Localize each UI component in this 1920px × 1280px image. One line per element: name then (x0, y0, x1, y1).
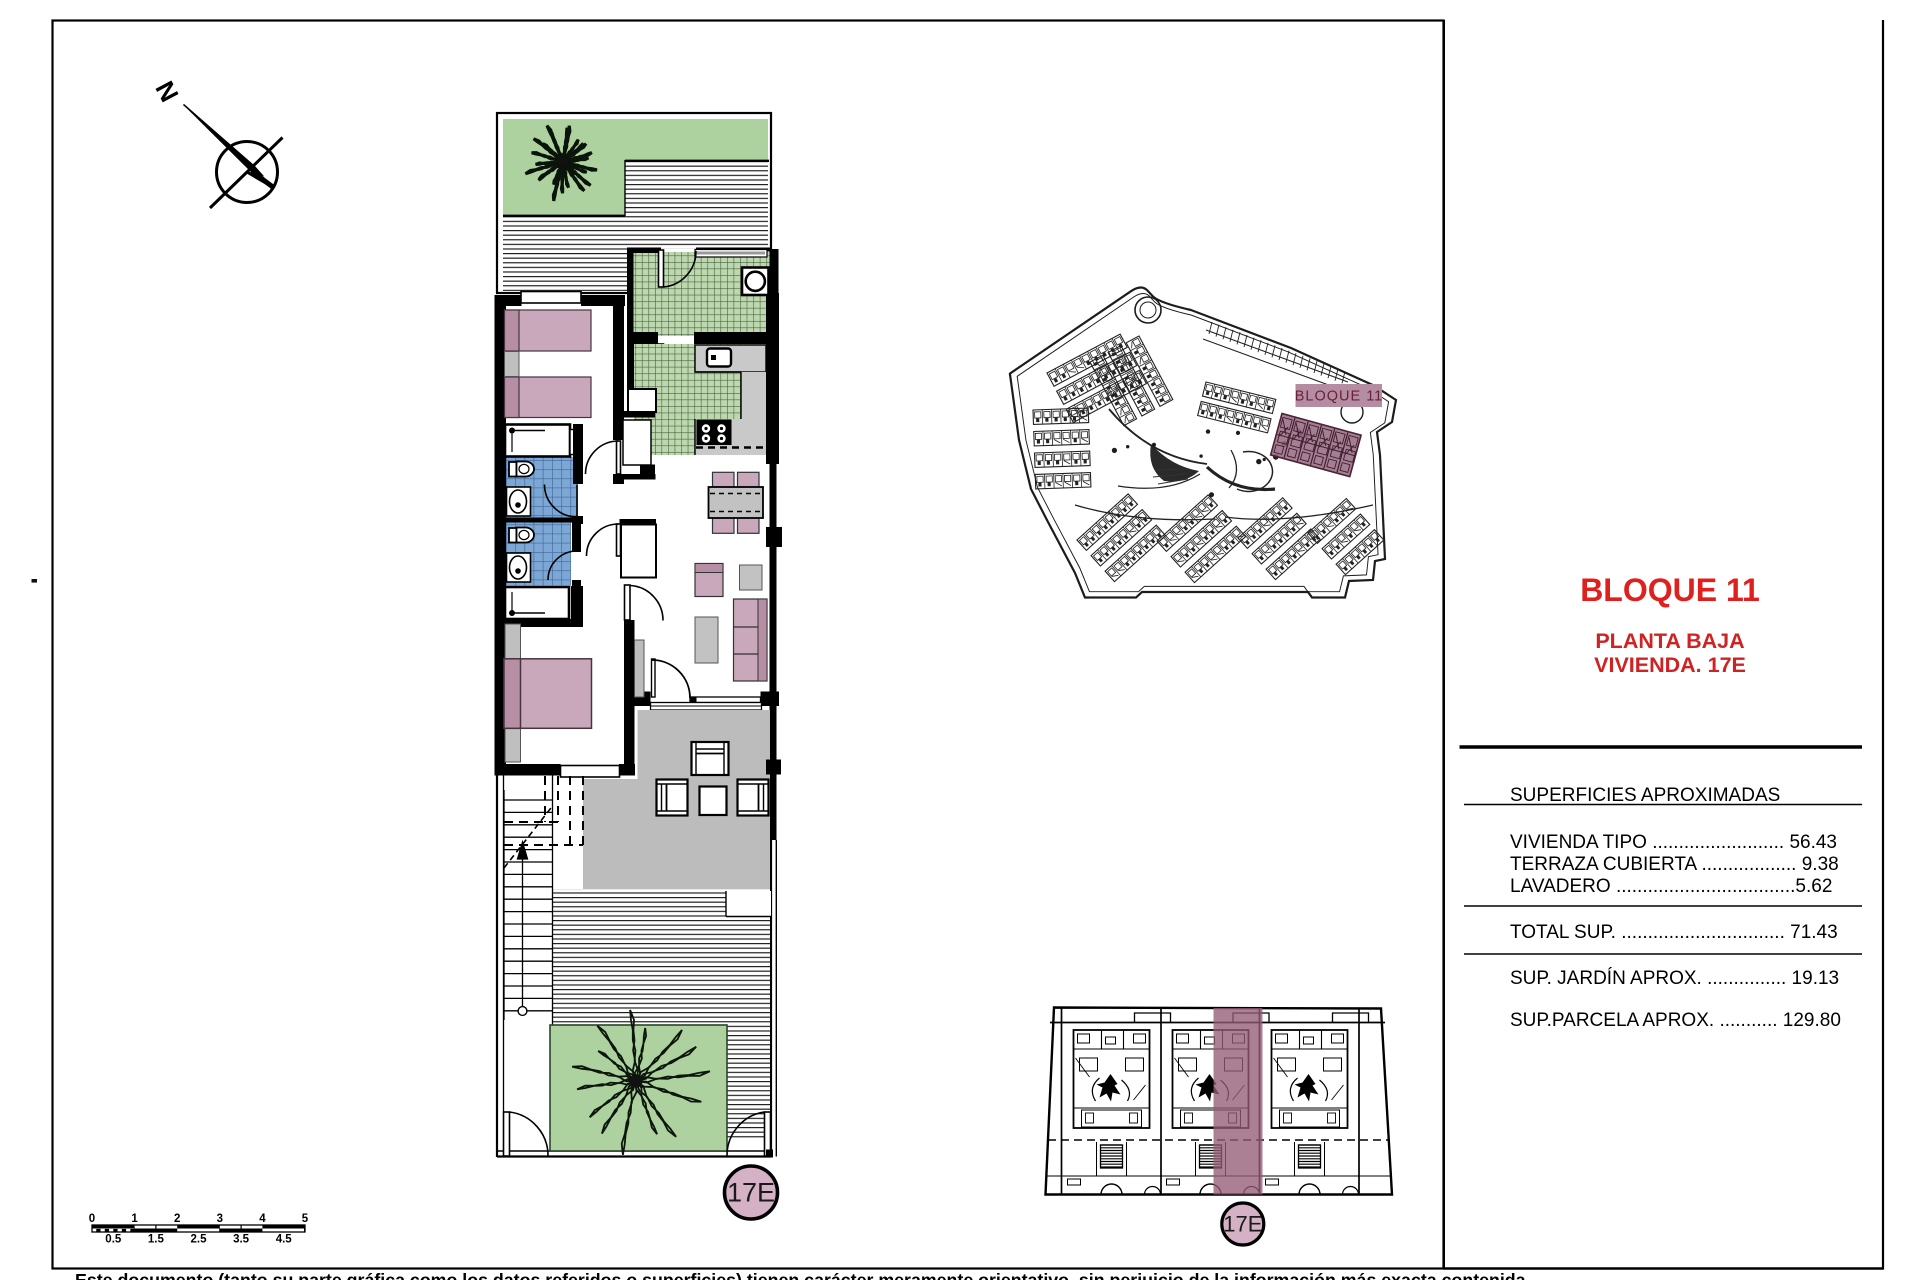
svg-text:0: 0 (89, 1213, 95, 1225)
svg-text:5: 5 (302, 1213, 309, 1225)
svg-text:4.5: 4.5 (276, 1234, 293, 1246)
svg-text:3.5: 3.5 (233, 1234, 250, 1246)
svg-text:BLOQUE 11: BLOQUE 11 (1295, 389, 1384, 405)
svg-text:17E: 17E (727, 1178, 775, 1208)
svg-text:TOTAL SUP. ..................: TOTAL SUP. .............................… (1510, 922, 1838, 943)
svg-text:17E: 17E (1223, 1212, 1262, 1237)
svg-text:SUP. JARDÍN APROX. ...........: SUP. JARDÍN APROX. ............... 19.13 (1510, 968, 1839, 989)
svg-text:2.5: 2.5 (191, 1234, 208, 1246)
svg-text:2: 2 (174, 1213, 180, 1225)
svg-text:SUP.PARCELA APROX. ...........: SUP.PARCELA APROX. ........... 129.80 (1510, 1010, 1841, 1031)
svg-text:4: 4 (259, 1213, 266, 1225)
svg-text:1: 1 (131, 1213, 138, 1225)
svg-text:0.5: 0.5 (105, 1234, 122, 1246)
svg-text:1.5: 1.5 (148, 1234, 165, 1246)
svg-text:VIVIENDA. 17E: VIVIENDA. 17E (1594, 653, 1746, 677)
svg-text:VIVIENDA TIPO ................: VIVIENDA TIPO ......................... … (1510, 832, 1837, 853)
svg-text:PLANTA BAJA: PLANTA BAJA (1595, 629, 1744, 653)
svg-text:Este documento (tanto su parte: Este documento (tanto su parte gráfica c… (75, 1270, 1526, 1280)
svg-text:LAVADERO .....................: LAVADERO ...............................… (1510, 876, 1832, 897)
svg-text:BLOQUE 11: BLOQUE 11 (1580, 572, 1760, 608)
svg-text:TERRAZA CUBIERTA .............: TERRAZA CUBIERTA .................. 9.38 (1510, 854, 1839, 875)
svg-text:SUPERFICIES APROXIMADAS: SUPERFICIES APROXIMADAS (1510, 785, 1780, 806)
svg-text:3: 3 (217, 1213, 223, 1225)
